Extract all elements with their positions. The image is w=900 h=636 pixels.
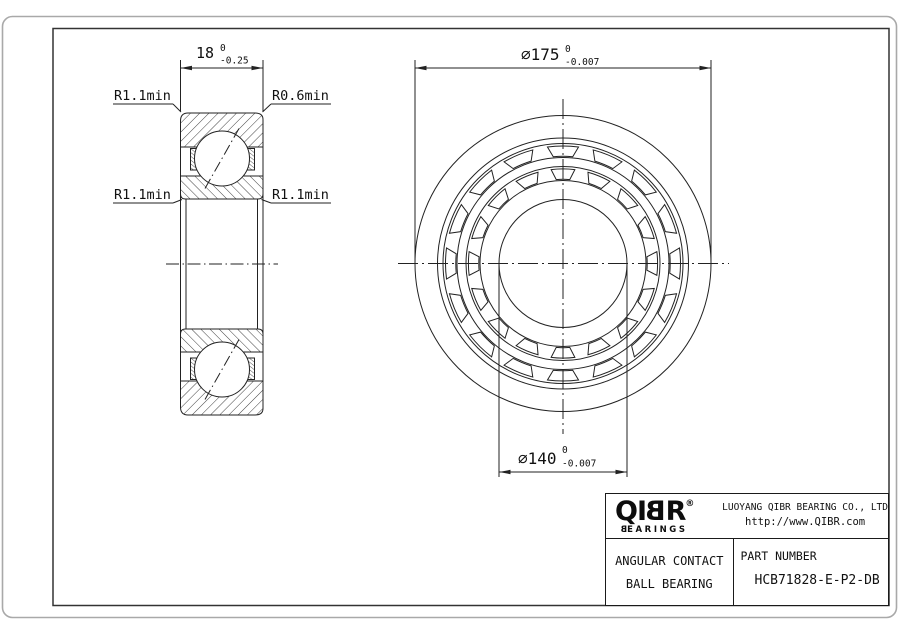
cage-pocket bbox=[632, 332, 657, 357]
product-line2: BALL BEARING bbox=[606, 573, 733, 596]
od-dim-tol-lower: -0.007 bbox=[565, 57, 599, 68]
logo-letter-mirrored: B bbox=[646, 498, 666, 525]
section-view bbox=[113, 60, 331, 415]
bore-dim-value: ∅140 bbox=[518, 449, 557, 468]
width-dim-value: 18 bbox=[196, 44, 214, 62]
cage-pocket bbox=[632, 170, 657, 195]
brand-logo: QIBR® BEARINGS bbox=[606, 498, 722, 535]
cage-pocket bbox=[638, 288, 654, 310]
logo-wordmark: QIBR® bbox=[615, 498, 722, 525]
company-website: http://www.QIBR.com bbox=[722, 515, 888, 531]
cage-pocket bbox=[470, 332, 495, 357]
cage-pocket bbox=[516, 172, 538, 188]
radius-label-top-left: R1.1min bbox=[114, 88, 171, 104]
company-info: LUOYANG QIBR BEARING CO., LTD http://www… bbox=[722, 501, 888, 531]
cage-pocket bbox=[504, 358, 533, 377]
arrowhead bbox=[415, 66, 427, 70]
cage-pocket bbox=[472, 217, 488, 239]
logo-subtitle: BEARINGS bbox=[618, 526, 722, 535]
cage-pocket bbox=[504, 150, 533, 169]
cage-pocket bbox=[472, 288, 488, 310]
logo-letter: R bbox=[666, 496, 686, 527]
product-type-cell: ANGULAR CONTACT BALL BEARING bbox=[606, 539, 733, 605]
width-dim-tol-upper: 0 bbox=[220, 43, 226, 54]
cage-pocket bbox=[658, 205, 677, 234]
arrowhead bbox=[499, 470, 511, 474]
od-dim-value: ∅175 bbox=[521, 45, 560, 64]
drawing-sheet: 18 0 -0.25 R1.1min R0.6min R1.1min R1.1m… bbox=[0, 0, 900, 636]
bore-dim-tol-lower: -0.007 bbox=[562, 459, 596, 470]
logo-subtitle-letter-mirrored: B bbox=[618, 526, 627, 535]
title-block-lower-row: ANGULAR CONTACT BALL BEARING PART NUMBER… bbox=[606, 539, 888, 605]
cage-pocket bbox=[593, 150, 622, 169]
registered-mark: ® bbox=[685, 499, 694, 509]
arrowhead bbox=[616, 470, 628, 474]
arrowhead bbox=[181, 66, 193, 70]
width-dimension bbox=[181, 60, 264, 111]
cage-pocket bbox=[449, 294, 468, 323]
title-block: QIBR® BEARINGS LUOYANG QIBR BEARING CO.,… bbox=[605, 493, 889, 606]
arrowhead bbox=[252, 66, 264, 70]
logo-letter: I bbox=[637, 496, 646, 527]
cage-pocket bbox=[638, 217, 654, 239]
cage-pocket bbox=[588, 338, 610, 354]
cage-pocket bbox=[470, 170, 495, 195]
product-line1: ANGULAR CONTACT bbox=[606, 550, 733, 573]
radius-label-mid-right: R1.1min bbox=[272, 187, 329, 203]
cage-pocket bbox=[658, 294, 677, 323]
radius-label-mid-left: R1.1min bbox=[114, 187, 171, 203]
cage-pocket bbox=[588, 172, 610, 188]
width-dim-tol-lower: -0.25 bbox=[220, 56, 249, 67]
cage-pocket bbox=[593, 358, 622, 377]
part-number-value: HCB71828-E-P2-DB bbox=[755, 573, 889, 588]
title-block-header-row: QIBR® BEARINGS LUOYANG QIBR BEARING CO.,… bbox=[606, 494, 888, 539]
radius-label-top-right: R0.6min bbox=[272, 88, 329, 104]
part-number-label: PART NUMBER bbox=[741, 549, 889, 563]
front-view bbox=[398, 60, 729, 477]
cage-pocket bbox=[449, 205, 468, 234]
arrowhead bbox=[700, 66, 712, 70]
cage-pocket bbox=[516, 338, 538, 354]
company-name: LUOYANG QIBR BEARING CO., LTD bbox=[722, 501, 888, 515]
logo-letter: Q bbox=[615, 496, 637, 527]
bore-dim-tol-upper: 0 bbox=[562, 445, 568, 456]
section-top-half bbox=[181, 113, 264, 199]
od-dim-tol-upper: 0 bbox=[565, 44, 571, 55]
section-bottom-half bbox=[181, 329, 264, 415]
part-number-cell: PART NUMBER HCB71828-E-P2-DB bbox=[733, 539, 889, 605]
